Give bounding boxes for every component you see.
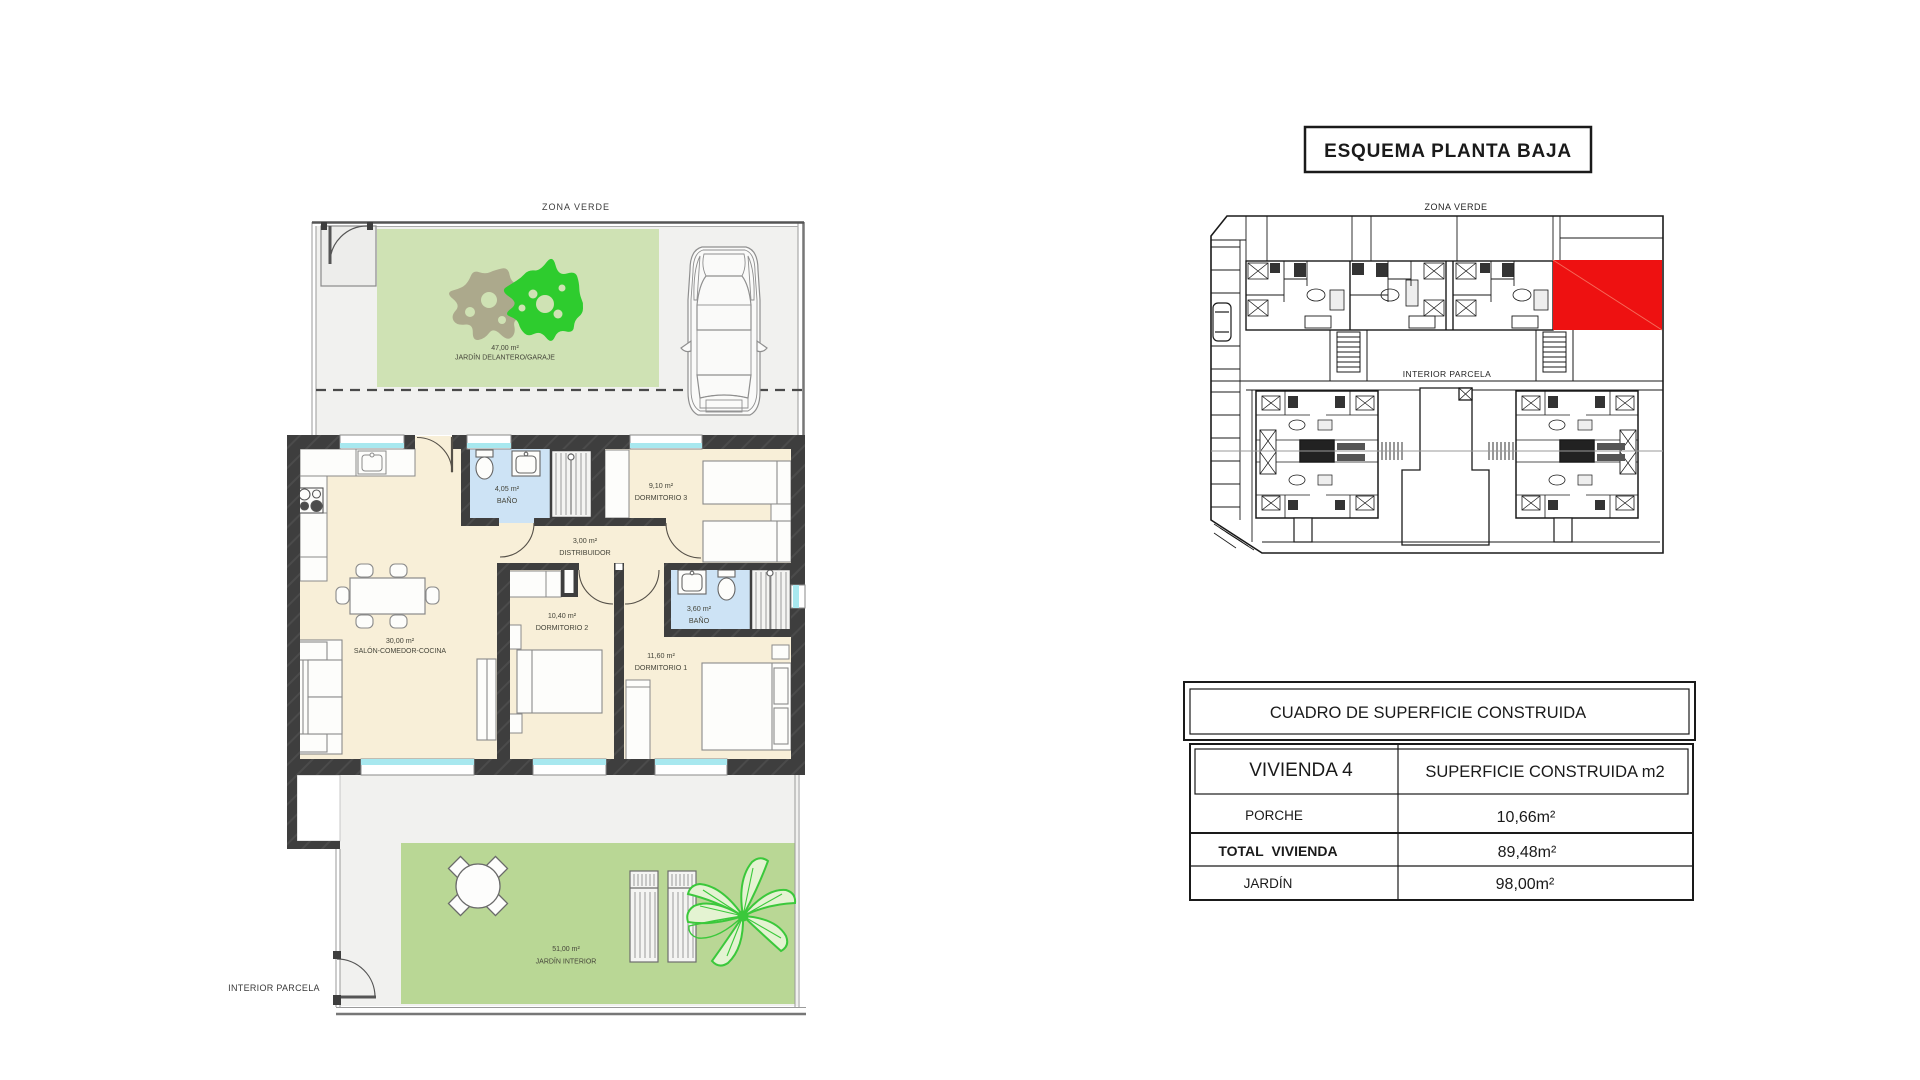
svg-text:ESQUEMA PLANTA BAJA: ESQUEMA PLANTA BAJA	[1324, 141, 1572, 162]
svg-text:10,40 m²: 10,40 m²	[548, 611, 577, 620]
svg-text:TOTAL VIVIENDA: TOTAL VIVIENDA	[1218, 843, 1337, 859]
svg-text:DISTRIBUIDOR: DISTRIBUIDOR	[559, 548, 611, 557]
svg-text:ZONA VERDE: ZONA VERDE	[1424, 202, 1487, 212]
svg-text:INTERIOR PARCELA: INTERIOR PARCELA	[1403, 369, 1491, 379]
svg-text:DORMITORIO 2: DORMITORIO 2	[536, 623, 589, 632]
svg-text:VIVIENDA 4: VIVIENDA 4	[1249, 760, 1353, 781]
svg-text:JARDÍN: JARDÍN	[1244, 876, 1293, 891]
svg-text:47,00 m²: 47,00 m²	[491, 345, 519, 352]
svg-text:BAÑO: BAÑO	[497, 496, 518, 505]
svg-text:INTERIOR PARCELA: INTERIOR PARCELA	[228, 983, 320, 993]
svg-text:ZONA VERDE: ZONA VERDE	[542, 202, 610, 212]
svg-text:11,60 m²: 11,60 m²	[647, 651, 675, 660]
svg-text:10,66m²: 10,66m²	[1497, 809, 1556, 826]
svg-text:98,00m²: 98,00m²	[1496, 876, 1555, 893]
svg-text:9,10 m²: 9,10 m²	[649, 481, 674, 490]
svg-text:4,05 m²: 4,05 m²	[495, 484, 520, 493]
svg-text:51,00 m²: 51,00 m²	[552, 946, 580, 953]
svg-text:JARDÍN INTERIOR: JARDÍN INTERIOR	[536, 957, 597, 966]
svg-text:30,00 m²: 30,00 m²	[386, 636, 415, 645]
svg-text:3,60 m²: 3,60 m²	[687, 604, 712, 613]
svg-text:BAÑO: BAÑO	[689, 616, 710, 625]
svg-text:DORMITORIO 3: DORMITORIO 3	[635, 493, 688, 502]
svg-text:JARDÍN DELANTERO/GARAJE: JARDÍN DELANTERO/GARAJE	[455, 353, 555, 362]
svg-text:89,48m²: 89,48m²	[1498, 844, 1557, 861]
svg-text:PORCHE: PORCHE	[1245, 808, 1303, 823]
svg-text:3,00 m²: 3,00 m²	[573, 536, 598, 545]
svg-text:CUADRO DE SUPERFICIE CONSTRUID: CUADRO DE SUPERFICIE CONSTRUIDA	[1270, 704, 1586, 722]
svg-text:DORMITORIO 1: DORMITORIO 1	[635, 663, 688, 672]
svg-text:SUPERFICIE CONSTRUIDA m2: SUPERFICIE CONSTRUIDA m2	[1425, 763, 1664, 781]
svg-text:SALÓN-COMEDOR-COCINA: SALÓN-COMEDOR-COCINA	[354, 646, 447, 655]
